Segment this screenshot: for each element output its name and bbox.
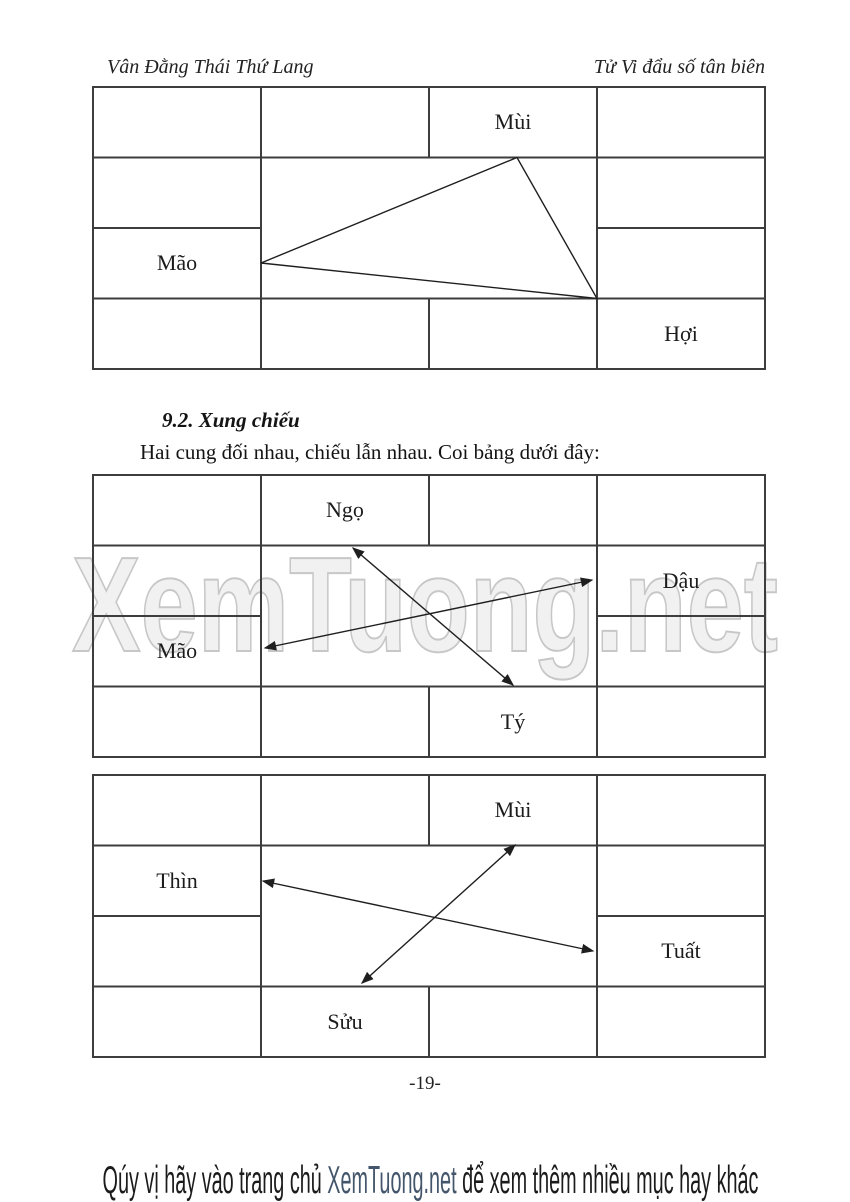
cell-label-mui: Mùi [429,87,597,157]
arrow-ngo-ty [353,548,513,685]
grid-xung-chieu-a: Ngọ Dậu Mão Tý [92,474,766,758]
section-heading: 9.2. Xung chiếu [162,408,300,433]
cell-label-suu: Sửu [261,987,429,1057]
header-book-title: Tử Vi đẩu số tân biên [594,56,765,79]
cell-label-ty: Tý [429,687,597,757]
cell-label-tuat: Tuất [597,916,765,986]
footer-note-text: Qúy vị hãy vào trang chủ XemTuong.net để… [64,1159,786,1202]
cell-label-mao: Mão [93,616,261,686]
arrow-mao-dau [265,580,592,648]
cell-label-mao: Mão [93,228,261,298]
arrow-thin-tuat [263,881,593,951]
cell-label-ngo: Ngọ [261,475,429,545]
footer-note: Qúy vị hãy vào trang chủ XemTuong.net để… [0,1151,850,1202]
cell-label-mui: Mùi [429,775,597,845]
arrow-mui-suu [362,845,515,983]
grid-tam-hop: Mùi Mão Hợi [92,86,766,370]
cell-label-hoi: Hợi [597,299,765,369]
footer-note-prefix: Qúy vị hãy vào trang chủ [103,1159,328,1202]
footer-note-link[interactable]: XemTuong.net [327,1159,456,1202]
section-intro: Hai cung đối nhau, chiếu lẫn nhau. Coi b… [140,440,600,465]
cell-label-thin: Thìn [93,846,261,916]
trine-triangle-shape [261,158,597,299]
page-number: -19- [0,1073,850,1095]
grid-xung-chieu-b: Mùi Thìn Tuất Sửu [92,774,766,1058]
cell-label-dau: Dậu [597,546,765,616]
book-page: Vân Đằng Thái Thứ Lang Tử Vi đẩu số tân … [0,0,850,1202]
footer-note-suffix: để xem thêm nhiều mục hay khác [457,1159,759,1202]
header-author: Vân Đằng Thái Thứ Lang [107,56,314,79]
